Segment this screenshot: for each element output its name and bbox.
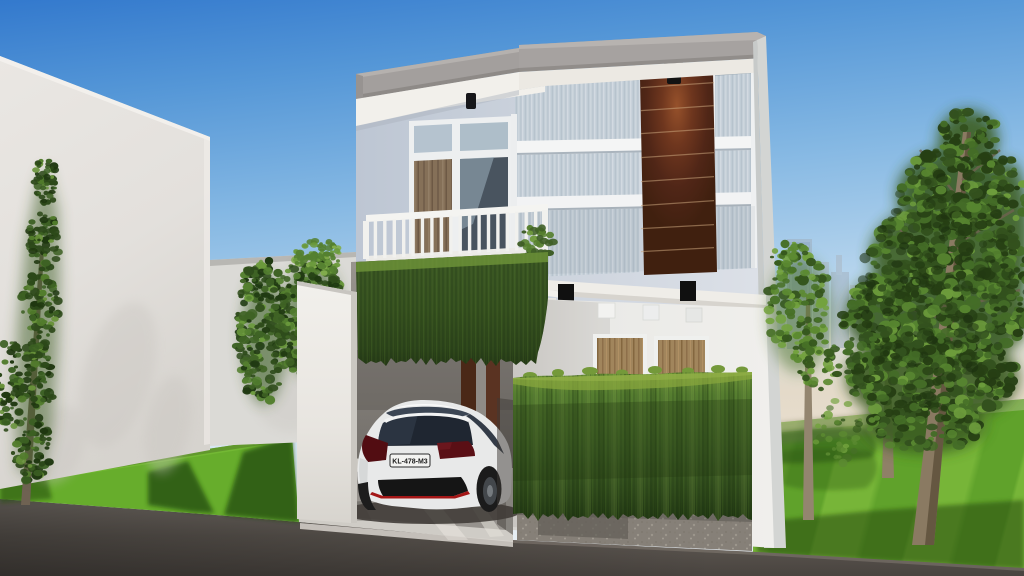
svg-text:KL-478-M3: KL-478-M3 [392, 459, 428, 466]
